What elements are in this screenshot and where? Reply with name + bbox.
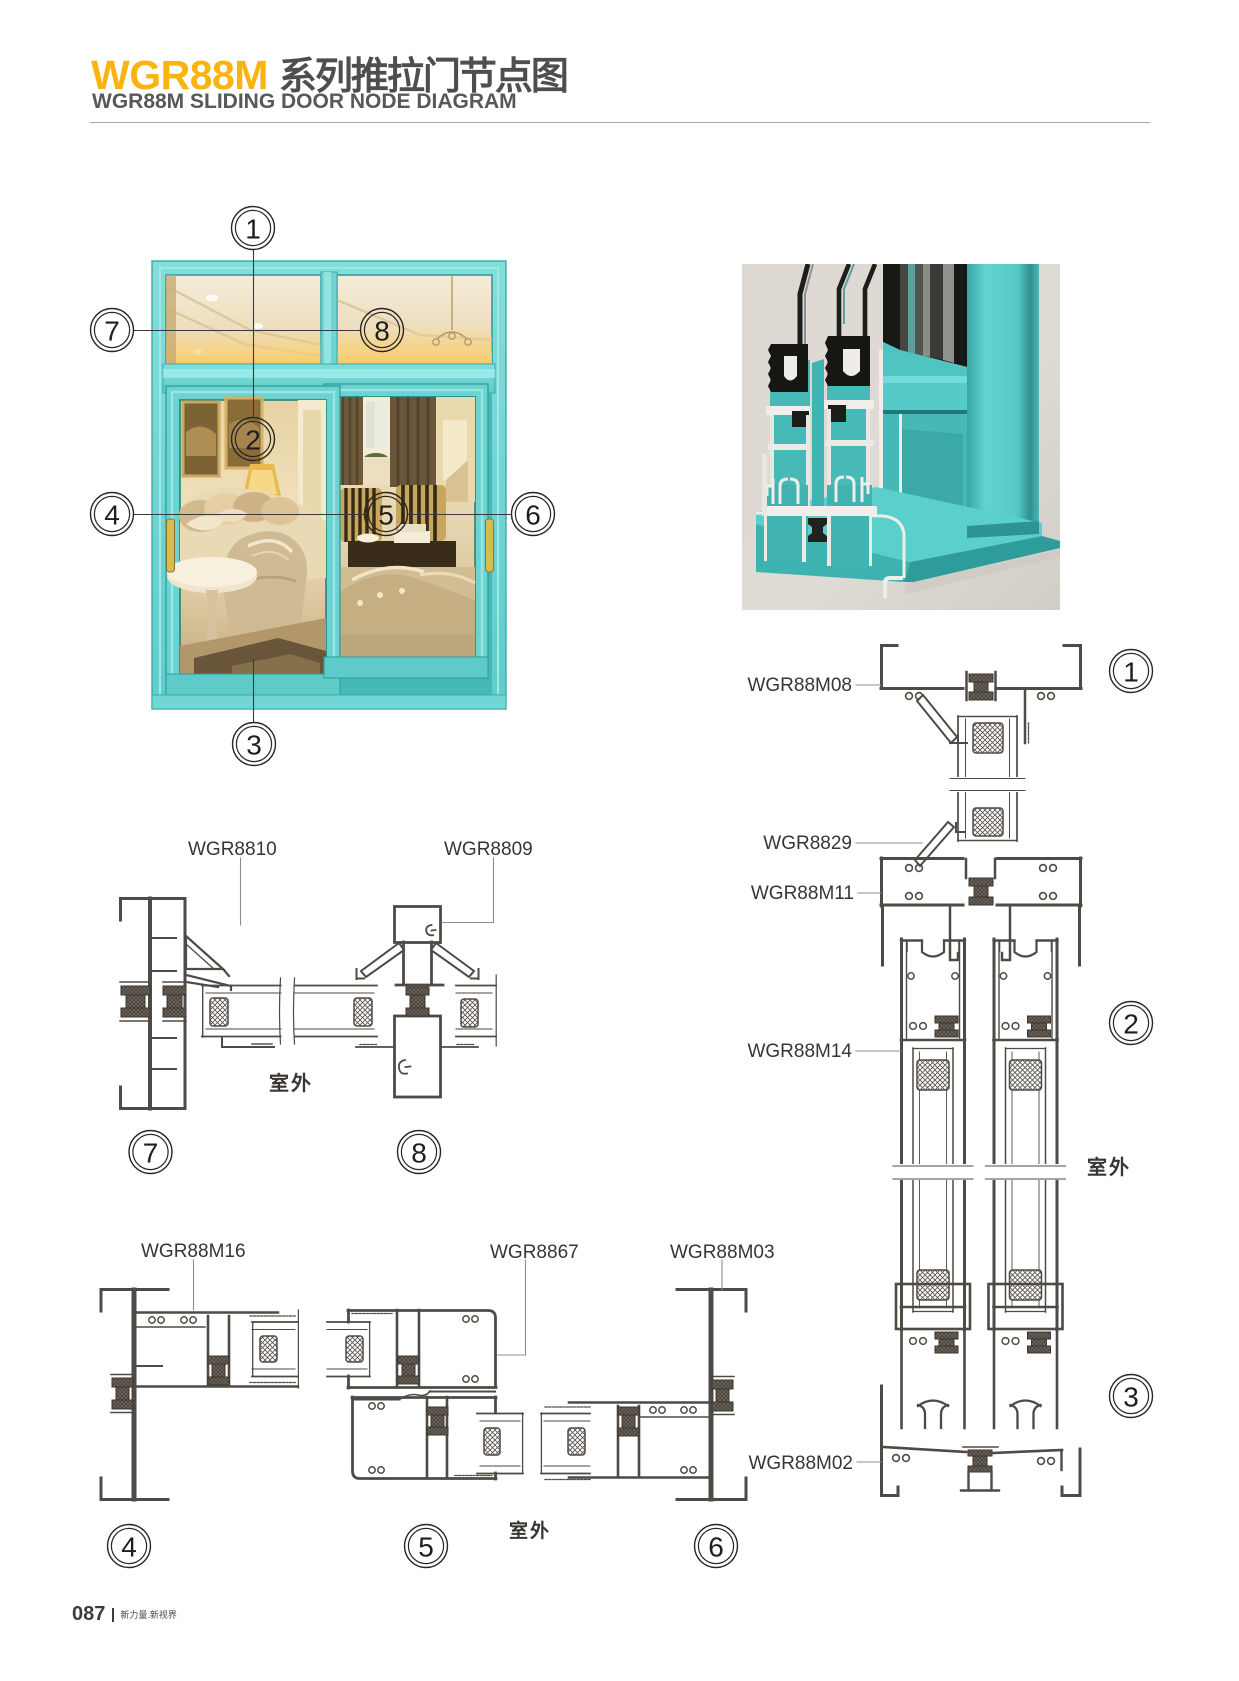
svg-text:WGR88M03: WGR88M03 xyxy=(670,1242,775,1263)
svg-text:3: 3 xyxy=(1123,1382,1139,1413)
svg-text:WGR88M14: WGR88M14 xyxy=(747,1041,852,1062)
svg-text:4: 4 xyxy=(104,500,120,531)
svg-text:2: 2 xyxy=(245,425,261,456)
svg-text:5: 5 xyxy=(418,1532,434,1563)
svg-text:WGR88M16: WGR88M16 xyxy=(141,1241,246,1262)
svg-text:1: 1 xyxy=(1123,657,1139,688)
svg-text:6: 6 xyxy=(708,1532,724,1563)
svg-text:1: 1 xyxy=(245,214,261,245)
svg-text:6: 6 xyxy=(525,500,541,531)
svg-text:4: 4 xyxy=(121,1532,137,1563)
svg-text:7: 7 xyxy=(104,316,120,347)
svg-text:室外: 室外 xyxy=(269,1071,313,1095)
svg-text:7: 7 xyxy=(143,1138,159,1169)
svg-text:WGR88M08: WGR88M08 xyxy=(747,675,852,696)
svg-text:8: 8 xyxy=(411,1138,427,1169)
svg-text:5: 5 xyxy=(378,500,394,531)
svg-text:WGR88M11: WGR88M11 xyxy=(751,883,854,904)
svg-text:室外: 室外 xyxy=(1087,1155,1131,1179)
svg-text:2: 2 xyxy=(1123,1009,1139,1040)
svg-text:WGR8810: WGR8810 xyxy=(188,839,277,860)
svg-text:8: 8 xyxy=(374,316,390,347)
svg-text:室外: 室外 xyxy=(509,1519,551,1542)
svg-text:WGR8867: WGR8867 xyxy=(490,1242,579,1263)
svg-text:3: 3 xyxy=(246,730,262,761)
svg-text:WGR8809: WGR8809 xyxy=(444,839,533,860)
svg-text:WGR8829: WGR8829 xyxy=(763,833,852,854)
